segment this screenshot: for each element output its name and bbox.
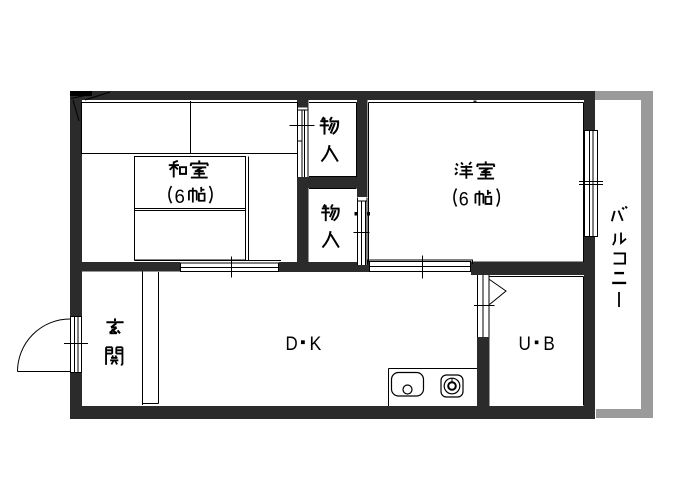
svg-text:K: K bbox=[310, 333, 322, 355]
svg-text:6: 6 bbox=[175, 186, 185, 208]
svg-text:D: D bbox=[286, 333, 298, 355]
svg-text:U: U bbox=[519, 333, 531, 355]
svg-text:B: B bbox=[543, 333, 554, 355]
svg-text:6: 6 bbox=[459, 189, 469, 211]
